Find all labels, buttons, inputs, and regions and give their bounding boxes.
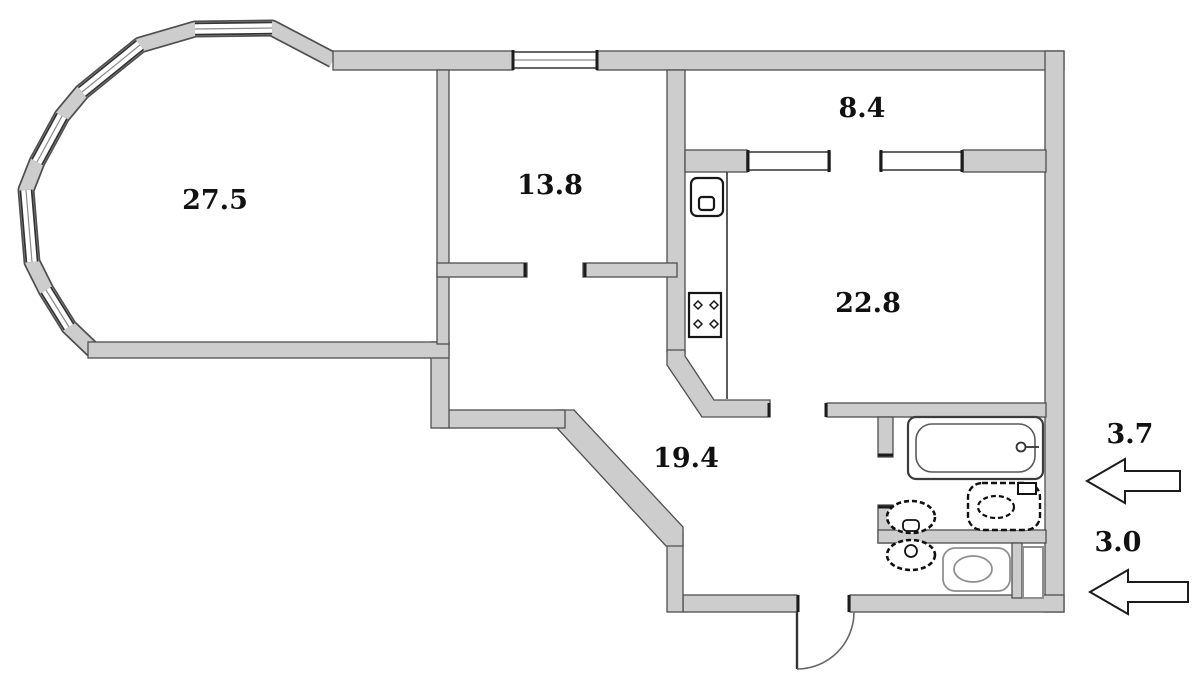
wall-bath-left-upper bbox=[878, 417, 893, 457]
entry-arrow-upper bbox=[1087, 459, 1180, 503]
wall-right bbox=[1045, 51, 1064, 612]
wall-hall84-right bbox=[963, 150, 1046, 172]
stove-icon bbox=[689, 293, 721, 337]
wall-kitchen-diagonal bbox=[667, 350, 770, 417]
wall-livingroom-bottom bbox=[88, 342, 449, 358]
wall-bedroom-bottom-b bbox=[583, 263, 677, 277]
entry-arrow-lower bbox=[1090, 570, 1188, 614]
area-label-kitchen-living: 22.8 bbox=[835, 288, 901, 319]
bay-wall-outline bbox=[26, 28, 333, 350]
area-label-bedroom: 13.8 bbox=[517, 170, 583, 201]
wc-toilet-icon bbox=[943, 548, 1010, 591]
area-label-balcony-lower: 3.0 bbox=[1095, 527, 1142, 558]
bay-window-segments bbox=[26, 28, 272, 327]
bathtub-icon bbox=[908, 417, 1043, 479]
area-label-living-room: 27.5 bbox=[182, 185, 248, 216]
wall-hall84-left bbox=[685, 150, 747, 172]
bay-wall-fill bbox=[26, 28, 333, 350]
bay-window-band bbox=[26, 28, 333, 350]
area-label-balcony-upper: 3.7 bbox=[1107, 419, 1154, 450]
area-label-corridor: 19.4 bbox=[653, 443, 719, 474]
door-swing-arc bbox=[797, 612, 854, 669]
duct-shaft-box bbox=[1023, 547, 1043, 598]
entrance-door bbox=[797, 612, 854, 669]
wall-bath-top bbox=[827, 403, 1046, 417]
wall-bedroom-kitchen bbox=[667, 70, 685, 352]
wall-living-bedroom bbox=[437, 70, 449, 344]
bath-toilet-icon bbox=[968, 483, 1040, 530]
bathtub-faucet bbox=[1017, 443, 1026, 452]
wall-hall-step bbox=[441, 410, 565, 428]
wall-top-right bbox=[597, 51, 1064, 70]
interior-walls bbox=[437, 70, 1046, 598]
wall-diagonal bbox=[557, 410, 683, 546]
top-window bbox=[513, 50, 597, 70]
wc-washbasin-icon bbox=[887, 540, 935, 570]
wall-top-left bbox=[333, 51, 513, 70]
area-label-entrance-hall: 8.4 bbox=[839, 93, 886, 124]
wall-wc-inner bbox=[1012, 543, 1022, 598]
bath-washbasin-icon bbox=[887, 501, 935, 533]
wall-bedroom-bottom-a bbox=[437, 263, 527, 277]
floor-plan: 27.5 13.8 8.4 22.8 19.4 3.7 3.0 bbox=[0, 0, 1200, 696]
sliding-door-panels bbox=[747, 150, 963, 172]
kitchen-sink-icon bbox=[691, 178, 723, 216]
wall-bottom-mid bbox=[683, 595, 797, 612]
